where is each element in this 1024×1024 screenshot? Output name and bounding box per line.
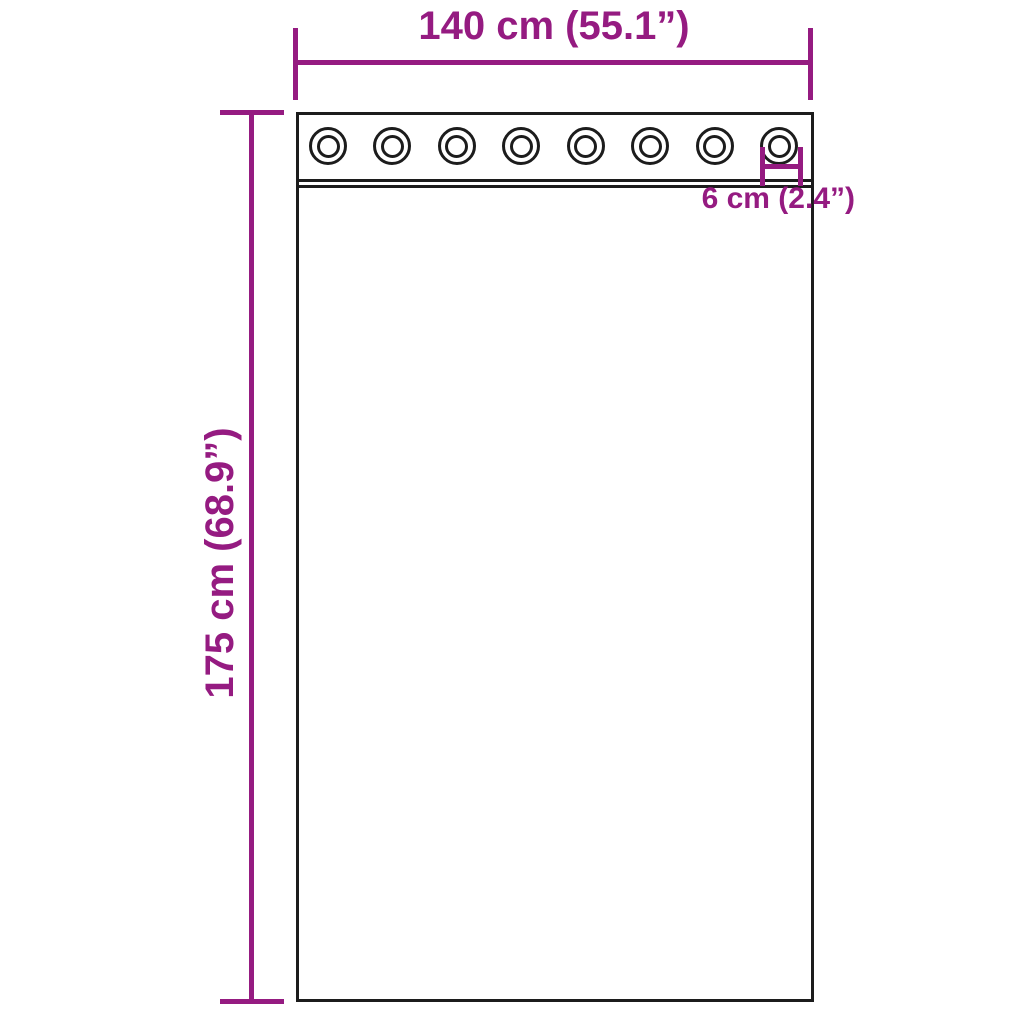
grommet-eyelet-inner-ring: [381, 135, 404, 158]
grommet-eyelet: [309, 127, 347, 165]
width-dimension-line: [296, 60, 812, 65]
grommet-dimension-label: 6 cm (2.4”): [650, 182, 855, 216]
height-dimension-end-cap-bottom: [220, 999, 284, 1004]
grommet-eyelet-inner-ring: [574, 135, 597, 158]
grommet-eyelet-inner-ring: [317, 135, 340, 158]
height-dimension-end-cap-top: [220, 110, 284, 115]
grommet-eyelet-inner-ring: [639, 135, 662, 158]
grommet-eyelet: [696, 127, 734, 165]
grommet-eyelet: [631, 127, 669, 165]
grommet-eyelet-inner-ring: [768, 135, 791, 158]
grommet-dimension-bar: [760, 164, 803, 169]
curtain-panel: [296, 112, 814, 1002]
grommet-eyelet-inner-ring: [510, 135, 533, 158]
product-dimension-diagram: 140 cm (55.1”) 175 cm (68.9”) 6 cm (2.4”…: [0, 0, 1024, 1024]
grommet-eyelet: [567, 127, 605, 165]
grommet-eyelet: [438, 127, 476, 165]
height-dimension-label: 175 cm (68.9”): [198, 363, 242, 763]
height-dimension-line: [249, 112, 254, 1002]
width-dimension-label: 140 cm (55.1”): [296, 4, 812, 49]
grommet-eyelet: [760, 127, 798, 165]
grommet-eyelet-inner-ring: [703, 135, 726, 158]
grommet-eyelet-inner-ring: [445, 135, 468, 158]
